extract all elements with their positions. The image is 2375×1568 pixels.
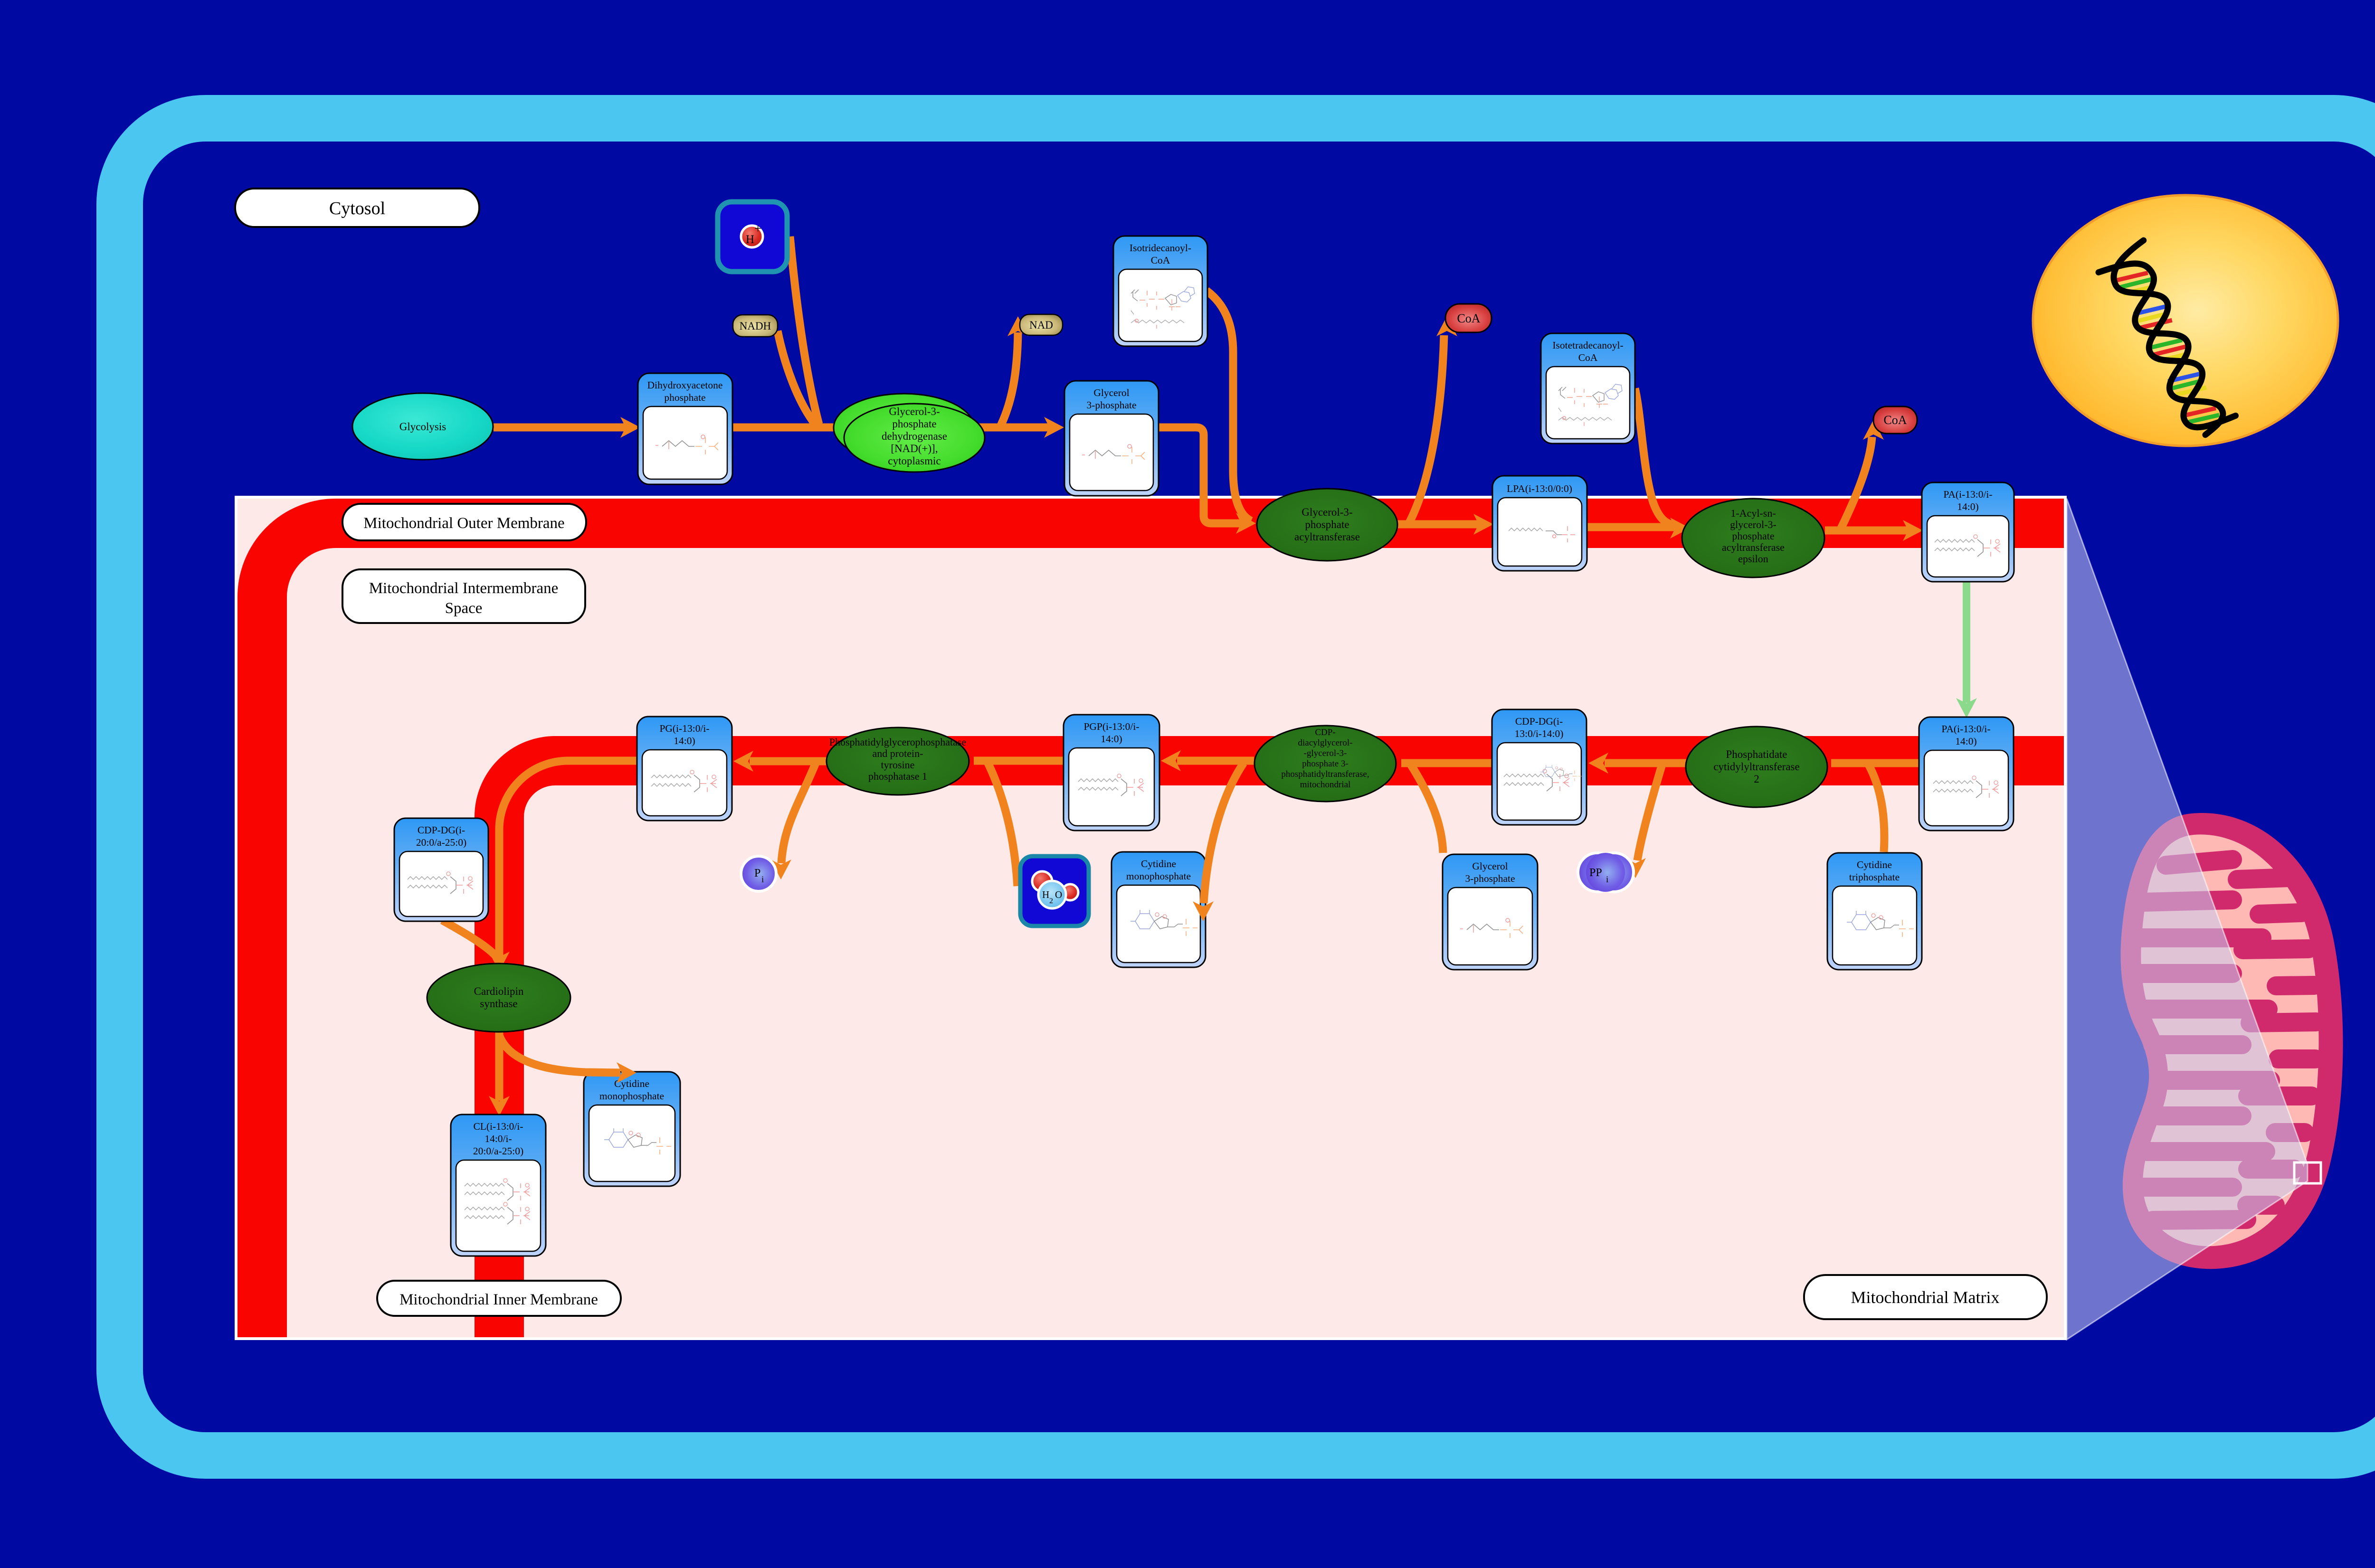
svg-text:CDP-: CDP- <box>1315 727 1335 737</box>
svg-text:14:0): 14:0) <box>1957 501 1978 512</box>
svg-text:diacylglycerol-: diacylglycerol- <box>1298 738 1352 748</box>
svg-text:H: H <box>746 233 754 246</box>
svg-text:glycerol-3-: glycerol-3- <box>1730 519 1776 530</box>
svg-text:Phosphatidate: Phosphatidate <box>1726 748 1787 760</box>
svg-text:CDP-DG(i-: CDP-DG(i- <box>1515 716 1563 727</box>
svg-text:[NAD(+)],: [NAD(+)], <box>891 443 938 454</box>
svg-text:mitochondrial: mitochondrial <box>1300 780 1351 790</box>
svg-text:phosphate 3-: phosphate 3- <box>1302 759 1349 769</box>
svg-text:14:0): 14:0) <box>1101 733 1122 745</box>
svg-text:CL(i-13:0/i-: CL(i-13:0/i- <box>473 1121 523 1132</box>
svg-text:tyrosine: tyrosine <box>881 759 915 771</box>
svg-text:Glycerol: Glycerol <box>1472 860 1508 872</box>
svg-text:Cardiolipin: Cardiolipin <box>474 985 524 997</box>
svg-text:Dihydroxyacetone: Dihydroxyacetone <box>647 379 723 391</box>
svg-text:PA(i-13:0/i-: PA(i-13:0/i- <box>1943 489 1992 500</box>
svg-text:NADH: NADH <box>740 320 771 332</box>
svg-text:phosphate: phosphate <box>1732 530 1774 542</box>
svg-text:acyltransferase: acyltransferase <box>1294 531 1360 543</box>
svg-text:cytidylyltransferase: cytidylyltransferase <box>1713 761 1799 773</box>
svg-text:Glycerol: Glycerol <box>1093 387 1129 398</box>
svg-text:Cytidine: Cytidine <box>1857 859 1892 870</box>
svg-text:dehydrogenase: dehydrogenase <box>882 430 947 442</box>
svg-text:Mitochondrial Outer Membrane: Mitochondrial Outer Membrane <box>363 515 564 532</box>
svg-text:and protein-: and protein- <box>873 747 923 759</box>
svg-text:PGP(i-13:0/i-: PGP(i-13:0/i- <box>1083 721 1139 732</box>
svg-text:Glycerol-3-: Glycerol-3- <box>1301 506 1352 518</box>
svg-text:Phosphatidylglycerophosphatase: Phosphatidylglycerophosphatase <box>829 736 966 748</box>
svg-text:monophosphate: monophosphate <box>1126 870 1191 882</box>
svg-text:3-phosphate: 3-phosphate <box>1086 399 1136 411</box>
svg-text:Mitochondrial Intermembrane: Mitochondrial Intermembrane <box>369 580 559 597</box>
svg-text:13:0/i-14:0): 13:0/i-14:0) <box>1515 728 1564 739</box>
svg-text:O: O <box>1055 889 1062 900</box>
svg-text:NAD: NAD <box>1029 319 1053 331</box>
svg-text:PP: PP <box>1589 867 1602 879</box>
svg-text:i: i <box>761 875 764 885</box>
svg-text:Cytosol: Cytosol <box>329 198 385 218</box>
svg-text:Glycolysis: Glycolysis <box>399 421 446 433</box>
svg-text:CoA: CoA <box>1151 255 1170 266</box>
svg-text:3-phosphate: 3-phosphate <box>1465 873 1515 884</box>
svg-text:epsilon: epsilon <box>1738 553 1768 565</box>
svg-text:+: + <box>754 221 761 236</box>
svg-text:phosphate: phosphate <box>1305 519 1349 530</box>
svg-text:20:0/a-25:0): 20:0/a-25:0) <box>473 1145 523 1157</box>
svg-text:phosphatase 1: phosphatase 1 <box>868 770 927 782</box>
svg-text:PA(i-13:0/i-: PA(i-13:0/i- <box>1941 723 1990 735</box>
svg-text:H: H <box>1042 889 1049 900</box>
svg-text:PG(i-13:0/i-: PG(i-13:0/i- <box>659 723 709 734</box>
svg-text:LPA(i-13:0/0:0): LPA(i-13:0/0:0) <box>1507 483 1572 494</box>
svg-text:P: P <box>754 867 760 879</box>
svg-text:synthase: synthase <box>480 998 517 1010</box>
svg-text:14:0): 14:0) <box>1955 736 1976 747</box>
svg-text:cytoplasmic: cytoplasmic <box>888 455 940 467</box>
svg-text:Cytidine: Cytidine <box>1141 858 1176 869</box>
svg-text:CDP-DG(i-: CDP-DG(i- <box>418 824 465 836</box>
svg-text:14:0/i-: 14:0/i- <box>484 1133 512 1144</box>
svg-text:acyltransferase: acyltransferase <box>1722 541 1785 553</box>
svg-text:Mitochondrial Inner Membrane: Mitochondrial Inner Membrane <box>399 1291 598 1308</box>
svg-text:Isotetradecanoyl-: Isotetradecanoyl- <box>1552 340 1623 351</box>
svg-text:triphosphate: triphosphate <box>1849 871 1900 883</box>
svg-text:Glycerol-3-: Glycerol-3- <box>889 406 940 417</box>
svg-text:Space: Space <box>445 600 483 617</box>
svg-text:-glycerol-3-: -glycerol-3- <box>1304 748 1347 758</box>
svg-text:20:0/a-25:0): 20:0/a-25:0) <box>416 837 466 848</box>
svg-text:14:0): 14:0) <box>674 735 695 746</box>
svg-text:monophosphate: monophosphate <box>599 1090 664 1102</box>
svg-text:2: 2 <box>1754 773 1759 785</box>
svg-text:1-Acyl-sn-: 1-Acyl-sn- <box>1730 507 1776 519</box>
svg-text:phosphate: phosphate <box>892 418 936 430</box>
svg-text:CoA: CoA <box>1578 352 1598 363</box>
svg-text:Isotridecanoyl-: Isotridecanoyl- <box>1130 242 1191 254</box>
svg-text:phosphate: phosphate <box>664 392 705 403</box>
svg-text:i: i <box>1606 875 1608 885</box>
svg-text:phosphatidyltransferase,: phosphatidyltransferase, <box>1281 769 1369 779</box>
svg-text:Mitochondrial Matrix: Mitochondrial Matrix <box>1851 1288 2000 1307</box>
svg-text:CoA: CoA <box>1457 312 1480 325</box>
svg-text:CoA: CoA <box>1883 413 1907 427</box>
svg-text:2: 2 <box>1049 897 1053 905</box>
